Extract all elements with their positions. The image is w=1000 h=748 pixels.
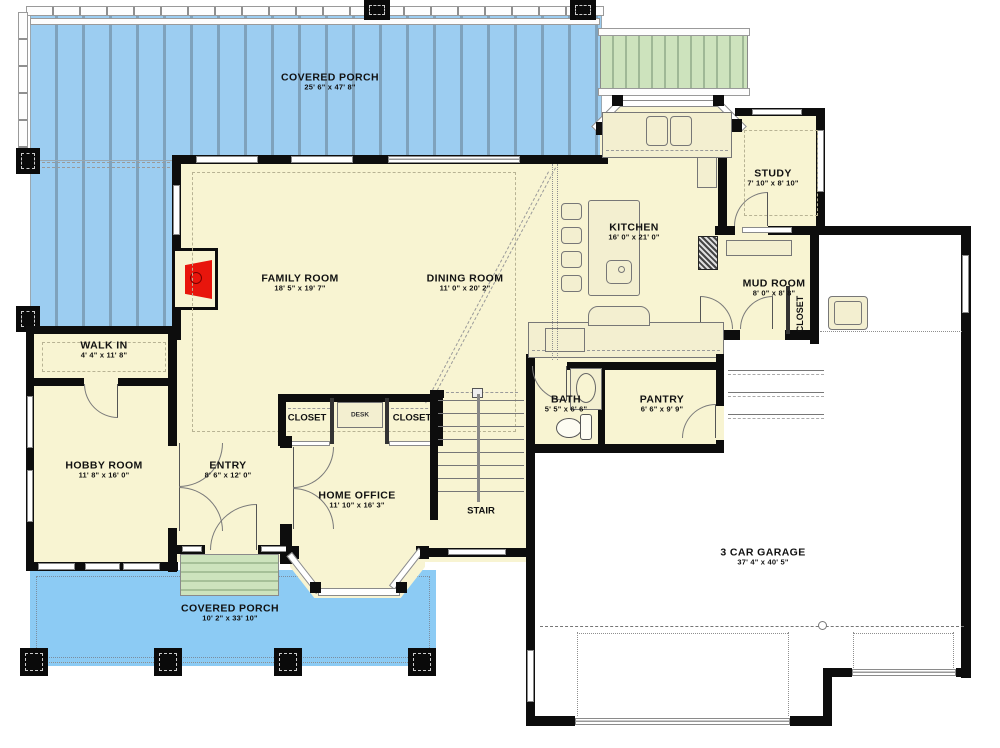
garage-south-wall-right: [956, 668, 971, 677]
stair-tread: [438, 439, 524, 440]
utility-sink-basin: [834, 301, 862, 325]
garage-header-line: [820, 331, 962, 332]
window: [448, 549, 506, 555]
deck-railing-top-inner: [30, 18, 600, 25]
stair-label: STAIR: [467, 506, 495, 517]
porch-post: [20, 648, 48, 676]
room-dims: 11' 8" x 16' 0": [65, 472, 142, 481]
garage-south-wall-right: [832, 668, 852, 677]
deck-roofline-dash: [32, 167, 175, 168]
bar-stool: [561, 251, 582, 268]
room-label-family-room: FAMILY ROOM 18' 5" x 19' 7": [261, 273, 338, 294]
dishwasher: [545, 328, 585, 352]
sliding-door: [388, 156, 520, 163]
garage-step-wall: [823, 668, 832, 726]
room-dims: 25' 6" x 47' 8": [281, 84, 379, 93]
porch-post: [408, 648, 436, 676]
closet-shelf: [288, 408, 330, 409]
window: [752, 109, 802, 115]
stair-rail: [477, 394, 480, 502]
stair-west-wall: [430, 392, 438, 520]
room-label-pantry: PANTRY 6' 6" x 9' 9": [640, 394, 684, 415]
bath-pantry-south-wall: [526, 444, 724, 453]
room-dims: 11' 0" x 20' 2": [427, 285, 504, 294]
mudroom-east-wall: [810, 226, 819, 344]
walkin-south-wall: [118, 378, 177, 386]
room-dims: 6' 6" x 9' 9": [640, 406, 684, 415]
deck-post: [364, 0, 390, 20]
toilet-tank: [580, 414, 592, 440]
deck-post: [16, 148, 40, 174]
stair-tread: [438, 478, 524, 479]
dining-ceiling-line: [552, 164, 553, 360]
closet-bifold-door: [286, 441, 330, 446]
deck-railing-top: [26, 6, 604, 16]
pantry-east-wall: [716, 354, 724, 406]
garage-door-track: [853, 633, 953, 634]
room-dims: 37' 4" x 40' 5": [720, 559, 805, 568]
room-label-covered-porch-bottom: COVERED PORCH 10' 2" x 33' 10": [181, 603, 279, 624]
room-dims: 11' 10" x 16' 3": [318, 502, 395, 511]
walkin-north-wall: [26, 326, 178, 334]
window: [196, 156, 258, 163]
porch-post: [154, 648, 182, 676]
closet-label-mudroom: CLOSET: [795, 296, 805, 333]
stair-tread: [438, 413, 524, 414]
garage-floor-mid: [724, 340, 824, 726]
desk-label: DESK: [351, 412, 369, 419]
bar-stool: [561, 227, 582, 244]
stair-tread: [438, 452, 524, 453]
closet-label-right: CLOSET: [393, 413, 432, 424]
sidelight-window: [182, 546, 202, 552]
floor-plan: COVERED PORCH 25' 6" x 47' 8" STUDY 7' 1…: [0, 0, 1000, 748]
garage-floor-left: [535, 452, 724, 726]
bar-stool: [561, 203, 582, 220]
deck-roofline-dash: [32, 162, 175, 163]
room-dims: 10' 2" x 33' 10": [181, 615, 279, 624]
stair-tread: [438, 465, 524, 466]
stair-tread: [438, 426, 524, 427]
walkin-south-wall: [30, 378, 84, 386]
room-label-dining-room: DINING ROOM 11' 0" x 20' 2": [427, 273, 504, 294]
deck-railing-left: [18, 12, 28, 154]
deck-stairs: [600, 34, 748, 90]
window: [27, 396, 33, 448]
office-west-wall: [280, 436, 292, 448]
sidelight-window: [261, 546, 287, 552]
garage-centerline: [540, 626, 964, 627]
entry-west-wall: [168, 436, 177, 446]
hobby-east-wall: [168, 330, 177, 444]
front-steps: [180, 554, 279, 596]
stair-tread: [438, 400, 524, 401]
bay-corner: [612, 95, 623, 106]
garage-step: [728, 392, 824, 393]
window: [291, 156, 353, 163]
garage-door-single: [852, 669, 956, 676]
garage-door-double: [575, 718, 790, 725]
counter-edge: [606, 150, 728, 151]
room-label-bath: BATH 5' 5" x 6' 6": [545, 394, 587, 415]
room-dims: 4' 4" x 11' 8": [80, 352, 127, 361]
family-tray-ceiling: [192, 172, 516, 432]
room-dims: 16' 0" x 21' 0": [608, 234, 659, 243]
bay-corner: [713, 95, 724, 106]
cooktop-hood: [588, 306, 650, 326]
bay-window: [318, 588, 400, 596]
room-dims: 5' 5" x 6' 6": [545, 406, 587, 415]
garage-step: [728, 370, 824, 371]
room-dims: 7' 10" x 8' 10": [747, 180, 798, 189]
mudroom-bench: [726, 240, 792, 256]
pantry-north-wall: [600, 362, 724, 370]
window: [962, 255, 969, 313]
room-label-study: STUDY 7' 10" x 8' 10": [747, 168, 798, 189]
room-label-hobby-room: HOBBY ROOM 11' 8" x 16' 0": [65, 460, 142, 481]
nook-window: [620, 100, 720, 107]
room-dims: 8' 6" x 12' 0": [205, 472, 252, 481]
porch-dotted-line: [30, 662, 436, 663]
closet-north-wall: [278, 394, 443, 402]
garage-centerline-node: [818, 621, 827, 630]
garage-step: [728, 414, 824, 415]
window: [817, 130, 824, 192]
kitchen-east-wall: [718, 148, 727, 228]
room-label-home-office: HOME OFFICE 11' 10" x 16' 3": [318, 490, 395, 511]
garage-door-track: [577, 633, 788, 634]
room-label-covered-porch-top: COVERED PORCH 25' 6" x 47' 8": [281, 72, 379, 93]
deck-stairs-rail: [598, 28, 750, 36]
window: [742, 227, 792, 233]
left-deck-boards: [30, 160, 179, 334]
closet-label-left: CLOSET: [288, 413, 327, 424]
window: [123, 563, 160, 570]
garage-step: [728, 374, 824, 375]
bar-stool: [561, 275, 582, 292]
window: [85, 563, 120, 570]
hobby-west-wall: [26, 330, 34, 570]
room-label-entry: ENTRY 8' 6" x 12' 0": [205, 460, 252, 481]
room-dims: 18' 5" x 19' 7": [261, 285, 338, 294]
garage-step: [728, 396, 824, 397]
closet-divider: [385, 398, 389, 444]
window: [527, 650, 534, 702]
room-label-kitchen: KITCHEN 16' 0" x 21' 0": [608, 222, 659, 243]
dining-ceiling-line: [557, 164, 558, 360]
garage-door-track: [788, 632, 789, 716]
toilet-bowl: [556, 418, 582, 438]
island-sink-drain: [618, 266, 625, 273]
garage-door-track: [953, 632, 954, 668]
closet-bifold-door: [389, 441, 433, 446]
range-oven: [698, 236, 718, 270]
closet-divider: [330, 398, 334, 444]
bay-corner: [396, 582, 407, 593]
garage-door-track: [577, 632, 578, 716]
garage-south-wall: [526, 716, 575, 726]
window: [27, 470, 33, 522]
stair-tread: [438, 491, 524, 492]
room-label-walk-in: WALK IN 4' 4" x 11' 8": [80, 340, 127, 361]
garage-door-track: [853, 632, 854, 668]
bay-corner: [310, 582, 321, 593]
deck-post: [570, 0, 596, 20]
garage-north-wall: [768, 226, 970, 235]
closet-shelf: [391, 408, 433, 409]
double-sink-right: [670, 116, 692, 146]
garage-step: [728, 418, 824, 419]
window: [173, 185, 180, 235]
room-label-garage: 3 CAR GARAGE 37' 4" x 40' 5": [720, 547, 805, 568]
double-sink-left: [646, 116, 668, 146]
window: [38, 563, 75, 570]
porch-post: [274, 648, 302, 676]
